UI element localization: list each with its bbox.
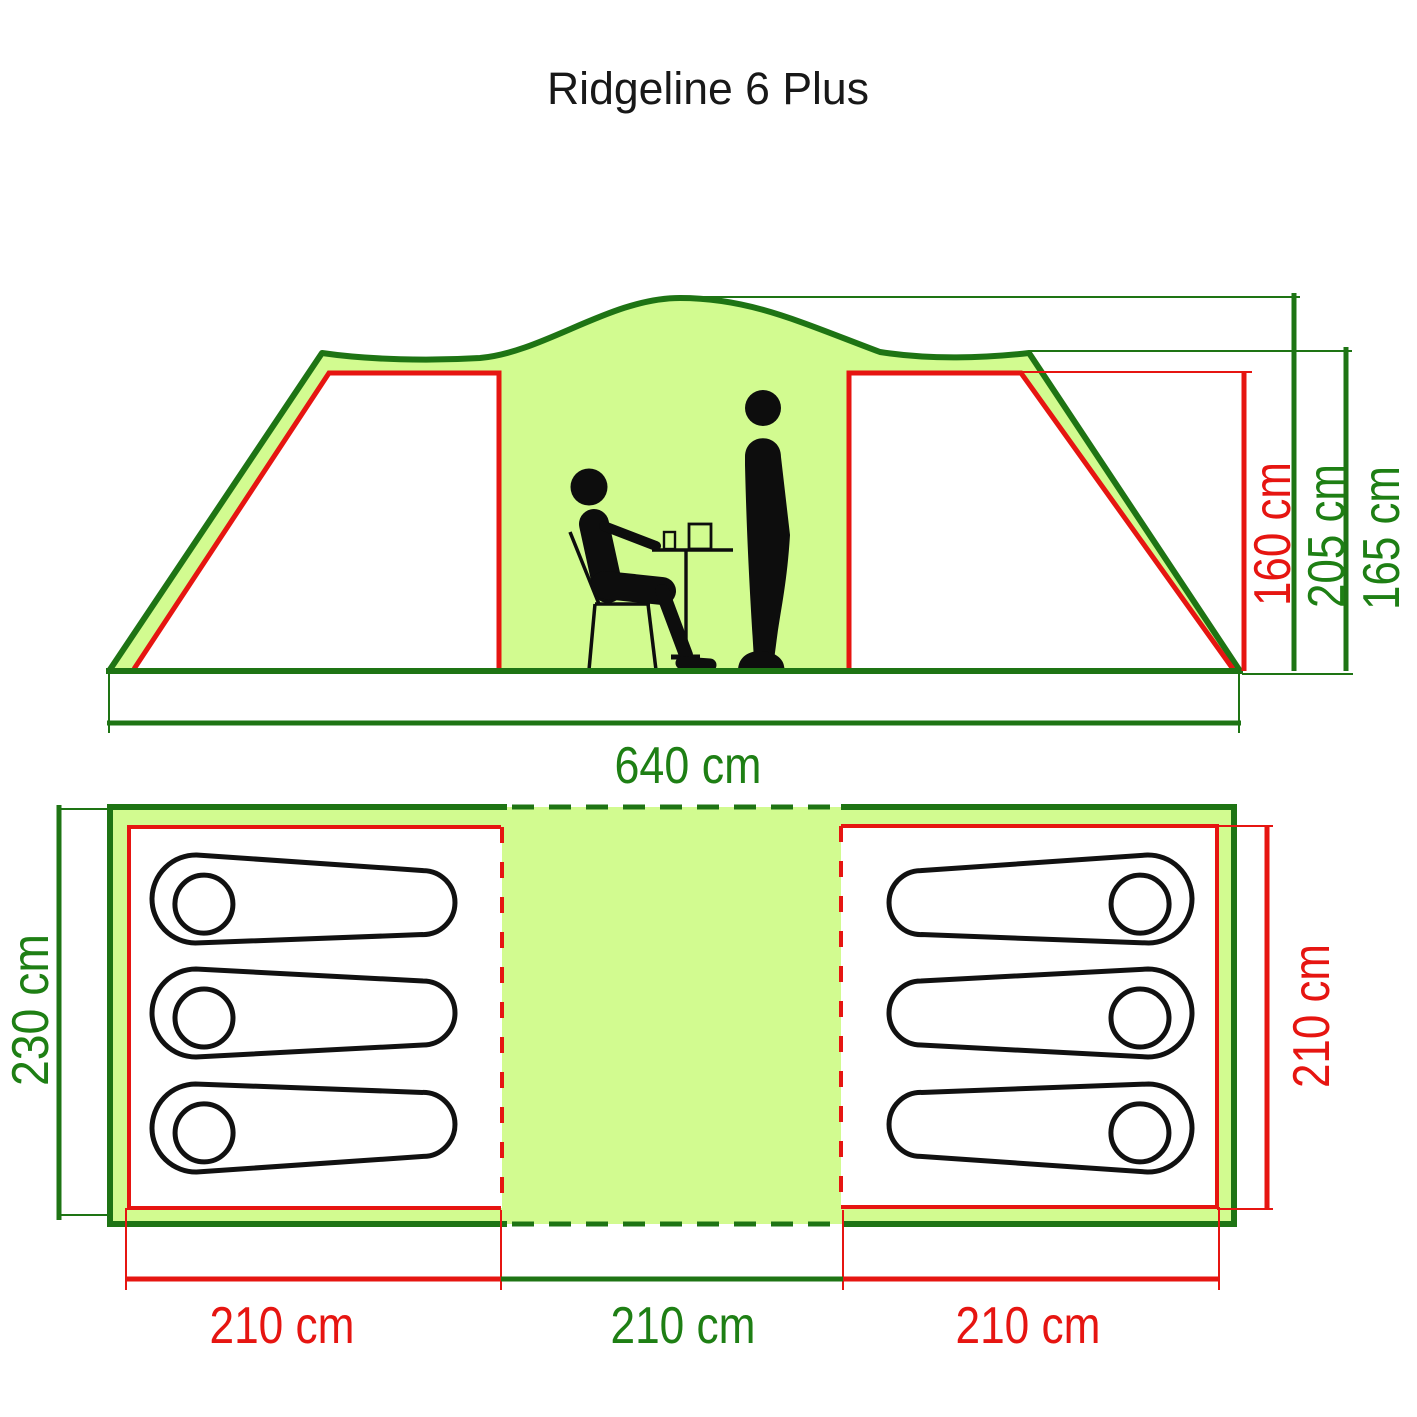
svg-text:210 cm: 210 cm: [611, 1297, 756, 1355]
svg-text:Ridgeline 6 Plus: Ridgeline 6 Plus: [547, 63, 869, 114]
svg-text:165 cm: 165 cm: [1353, 466, 1411, 610]
svg-text:210 cm: 210 cm: [1283, 944, 1341, 1088]
svg-text:210 cm: 210 cm: [956, 1297, 1101, 1355]
svg-text:210 cm: 210 cm: [210, 1297, 355, 1355]
svg-text:640 cm: 640 cm: [615, 737, 762, 795]
svg-text:230 cm: 230 cm: [2, 934, 60, 1086]
svg-text:160 cm: 160 cm: [1244, 462, 1302, 606]
svg-text:205 cm: 205 cm: [1298, 464, 1356, 608]
